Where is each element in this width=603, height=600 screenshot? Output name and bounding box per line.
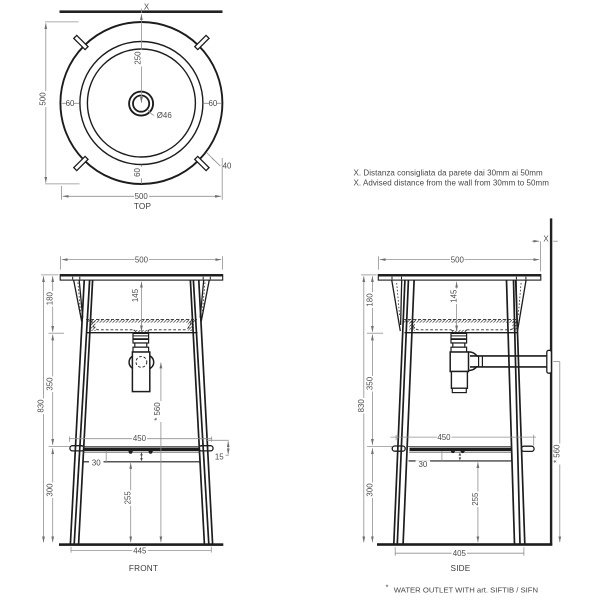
svg-text:60: 60 bbox=[66, 99, 75, 108]
svg-text:15: 15 bbox=[215, 453, 224, 462]
svg-text:300: 300 bbox=[46, 483, 55, 497]
svg-text:255: 255 bbox=[471, 492, 480, 506]
svg-text:500: 500 bbox=[38, 92, 47, 106]
svg-text:60: 60 bbox=[133, 168, 142, 177]
svg-text:300: 300 bbox=[365, 483, 374, 497]
svg-text:145: 145 bbox=[131, 288, 140, 302]
svg-text:180: 180 bbox=[46, 292, 55, 306]
svg-text:500: 500 bbox=[135, 192, 149, 201]
svg-text:405: 405 bbox=[453, 549, 467, 558]
svg-text:255: 255 bbox=[124, 491, 133, 505]
svg-text:250: 250 bbox=[134, 51, 143, 65]
svg-text:145: 145 bbox=[450, 289, 459, 303]
svg-text:SIDE: SIDE bbox=[451, 564, 471, 573]
svg-text:350: 350 bbox=[365, 376, 374, 390]
svg-text:*: * bbox=[386, 582, 389, 591]
svg-text:30: 30 bbox=[92, 458, 101, 467]
svg-text:350: 350 bbox=[46, 377, 55, 391]
svg-text:X. Distanza consigliata da par: X. Distanza consigliata da parete dai 30… bbox=[354, 168, 543, 177]
svg-text:FRONT: FRONT bbox=[129, 564, 158, 573]
svg-text:* 560: * 560 bbox=[153, 402, 162, 421]
svg-text:40: 40 bbox=[223, 161, 232, 170]
svg-text:* 560: * 560 bbox=[552, 444, 561, 463]
svg-text:X: X bbox=[144, 3, 150, 12]
svg-text:445: 445 bbox=[133, 546, 147, 555]
svg-text:450: 450 bbox=[133, 434, 147, 443]
svg-text:TOP: TOP bbox=[134, 202, 152, 211]
svg-text:60: 60 bbox=[209, 99, 218, 108]
svg-text:500: 500 bbox=[135, 255, 149, 264]
svg-text:X. Advised distance from the w: X. Advised distance from the wall from 3… bbox=[354, 179, 550, 188]
svg-text:500: 500 bbox=[451, 255, 465, 264]
svg-text:830: 830 bbox=[37, 399, 46, 413]
svg-text:830: 830 bbox=[357, 399, 366, 413]
svg-text:30: 30 bbox=[419, 460, 428, 469]
svg-text:Ø46: Ø46 bbox=[157, 111, 173, 120]
svg-text:450: 450 bbox=[437, 433, 451, 442]
svg-text:WATER OUTLET WITH art. SIFTIB: WATER OUTLET WITH art. SIFTIB / SIFN bbox=[394, 585, 538, 594]
svg-text:X: X bbox=[543, 234, 549, 243]
svg-text:180: 180 bbox=[365, 293, 374, 307]
